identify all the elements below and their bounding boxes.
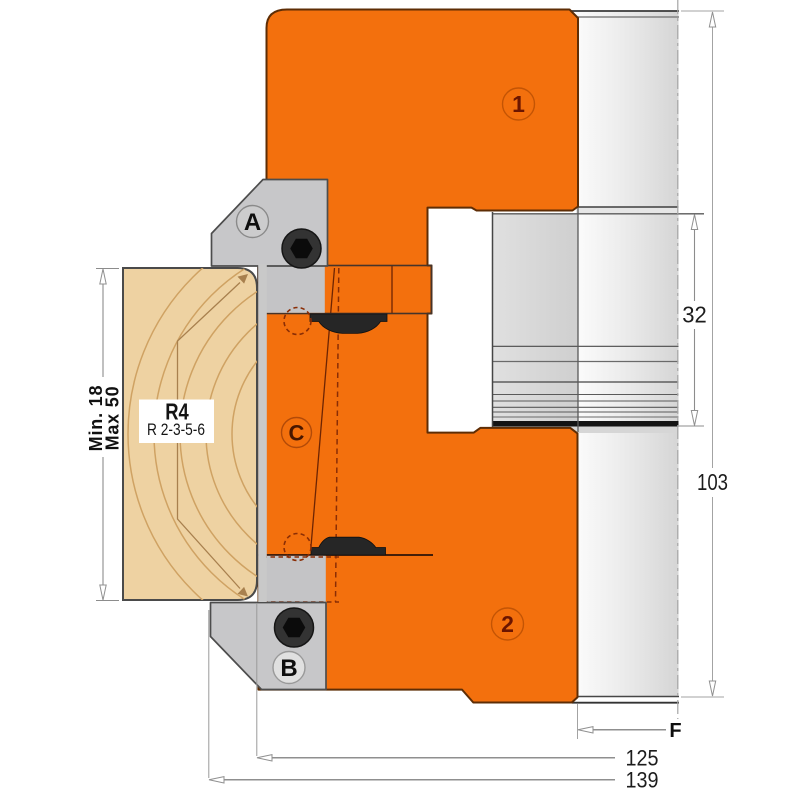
- svg-text:139: 139: [626, 768, 659, 793]
- svg-text:C: C: [289, 421, 305, 446]
- svg-text:103: 103: [697, 469, 728, 495]
- svg-text:A: A: [244, 209, 261, 236]
- svg-text:B: B: [280, 655, 297, 682]
- svg-text:F: F: [669, 720, 681, 742]
- svg-text:1: 1: [512, 91, 525, 117]
- svg-text:Max 50: Max 50: [103, 386, 123, 451]
- svg-text:2: 2: [501, 611, 514, 637]
- svg-text:R 2-3-5-6: R 2-3-5-6: [147, 420, 205, 439]
- svg-text:32: 32: [682, 302, 707, 328]
